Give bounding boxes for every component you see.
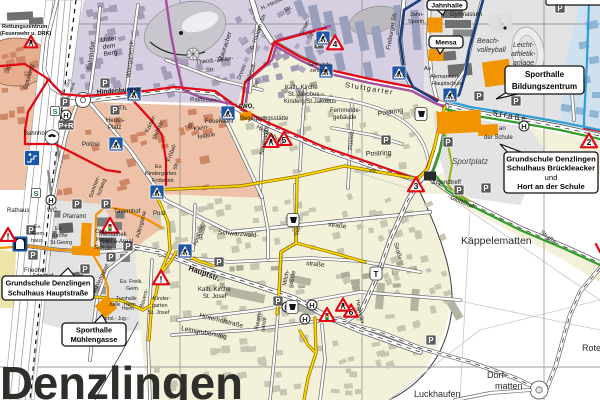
svg-text:P: P — [74, 200, 79, 209]
svg-text:Platz: Platz — [108, 125, 121, 131]
svg-text:P: P — [428, 336, 433, 345]
svg-text:(Feuerwehr u. DRK): (Feuerwehr u. DRK) — [0, 31, 52, 37]
svg-text:Ev.: Ev. — [55, 226, 63, 232]
svg-text:P: P — [445, 138, 450, 147]
svg-text:H: H — [48, 196, 53, 205]
svg-text:P: P — [30, 251, 35, 260]
svg-text:P: P — [62, 98, 67, 107]
svg-text:Grundschule Denzlingen: Grundschule Denzlingen — [506, 154, 596, 163]
svg-text:Dorf-: Dorf- — [487, 370, 507, 380]
svg-text:4: 4 — [333, 39, 338, 49]
svg-text:Polizei: Polizei — [82, 142, 100, 148]
svg-text:Heim: Heim — [122, 306, 134, 312]
svg-text:Kinder-: Kinder- — [153, 296, 171, 302]
svg-text:P: P — [82, 265, 87, 274]
svg-text:AWO,: AWO, — [238, 104, 254, 110]
svg-text:Rote: Rote — [582, 343, 600, 353]
svg-text:und: und — [545, 173, 558, 182]
svg-text:Schulhaus Hauptstraße: Schulhaus Hauptstraße — [8, 289, 88, 298]
svg-text:Luckhaufen: Luckhaufen — [414, 389, 461, 399]
svg-text:2: 2 — [587, 137, 592, 147]
svg-text:P: P — [102, 79, 107, 88]
svg-text:S: S — [52, 107, 57, 116]
svg-text:Hort an der Schule: Hort an der Schule — [517, 182, 585, 191]
svg-text:Mediathek: Mediathek — [99, 232, 128, 238]
svg-text:P: P — [483, 184, 488, 193]
svg-text:Gem.: Gem. — [126, 286, 140, 292]
svg-text:Th.: Th. — [119, 106, 128, 112]
svg-text:H: H — [302, 315, 307, 324]
svg-text:Hauptschule: Hauptschule — [432, 81, 463, 87]
svg-text:St. Jakobus: St. Jakobus — [288, 92, 319, 98]
svg-text:Denzlingen: Denzlingen — [0, 357, 243, 400]
svg-text:Kath. Kirche: Kath. Kirche — [285, 85, 318, 91]
svg-text:S: S — [33, 189, 38, 198]
svg-text:Post: Post — [153, 211, 165, 217]
svg-text:P: P — [513, 97, 518, 106]
svg-text:garten: garten — [152, 303, 168, 309]
svg-text:Sporth.: Sporth. — [408, 19, 426, 25]
svg-text:an: an — [499, 126, 506, 132]
svg-text:WC: WC — [47, 208, 58, 214]
svg-text:Alemannen-: Alemannen- — [430, 74, 460, 80]
svg-text:P: P — [476, 92, 481, 101]
svg-text:St.Georg: St.Georg — [50, 240, 72, 246]
svg-text:Käppelematten: Käppelematten — [461, 235, 532, 247]
svg-text:Jugendtreff: Jugendtreff — [431, 180, 461, 186]
svg-text:Pfarramt: Pfarramt — [63, 214, 86, 220]
svg-text:Fröbelstr.: Fröbelstr. — [152, 178, 175, 184]
svg-text:Fernmelde-: Fernmelde- — [330, 108, 361, 114]
svg-text:gebäude: gebäude — [333, 115, 357, 121]
svg-text:Au: Au — [424, 66, 431, 72]
svg-text:volleyball: volleyball — [477, 47, 506, 54]
svg-text:H: H — [63, 111, 68, 120]
svg-text:Gem.: Gem. — [32, 231, 46, 237]
svg-text:Rocca-Areal: Rocca-Areal — [100, 239, 133, 245]
svg-text:P: P — [383, 136, 388, 145]
svg-text:P: P — [216, 258, 221, 267]
svg-text:Ev. Freik.: Ev. Freik. — [120, 279, 143, 285]
svg-text:Postring: Postring — [366, 150, 392, 158]
svg-text:Kindergarten: Kindergarten — [145, 171, 177, 177]
svg-text:Rettungszentrum: Rettungszentrum — [2, 24, 47, 30]
svg-text:Jahnhalle: Jahnhalle — [431, 2, 463, 9]
svg-text:haus: haus — [31, 238, 43, 244]
svg-text:Mühlengasse: Mühlengasse — [71, 335, 118, 344]
svg-text:Bahnhof: Bahnhof — [24, 131, 47, 137]
svg-text:Grundschule Denzlingen: Grundschule Denzlingen — [6, 279, 91, 288]
svg-text:Kirche: Kirche — [52, 233, 68, 239]
svg-text:Leicht-: Leicht- — [513, 42, 535, 49]
svg-text:St. Josef: St. Josef — [148, 310, 170, 316]
svg-text:matten: matten — [495, 381, 523, 391]
svg-text:der Schule: der Schule — [484, 135, 513, 141]
svg-text:Jahn-: Jahn- — [410, 12, 424, 18]
svg-text:Kinderg.St.Jakobus: Kinderg.St.Jakobus — [284, 99, 336, 105]
svg-text:Mensa: Mensa — [435, 39, 456, 46]
svg-text:Schule: Schule — [94, 245, 113, 252]
svg-text:Gymnasium: Gymnasium — [450, 12, 482, 18]
svg-text:!: ! — [7, 232, 10, 242]
svg-text:athletik-: athletik- — [511, 51, 536, 58]
svg-text:P: P — [275, 297, 280, 306]
svg-text:P+R: P+R — [59, 121, 74, 130]
svg-text:Str.: Str. — [206, 67, 216, 74]
svg-text:Heuss-: Heuss- — [106, 118, 125, 124]
svg-text:zentrum: zentrum — [310, 68, 328, 74]
svg-text:Tavernhof: Tavernhof — [114, 209, 141, 215]
svg-text:P: P — [103, 200, 108, 209]
svg-text:str.: str. — [369, 168, 378, 175]
svg-text:Schulhaus Brückleacker: Schulhaus Brückleacker — [507, 164, 595, 173]
svg-text:T: T — [374, 270, 379, 279]
svg-text:P: P — [108, 253, 113, 262]
svg-text:P: P — [456, 186, 461, 195]
svg-text:Feuerwehr: Feuerwehr — [205, 119, 234, 125]
svg-text:Kath. Kirche: Kath. Kirche — [198, 287, 231, 293]
svg-text:Ev.: Ev. — [155, 164, 163, 170]
svg-text:Sporthalle: Sporthalle — [525, 70, 565, 79]
svg-text:3: 3 — [414, 181, 419, 191]
svg-text:Ev.: Ev. — [34, 224, 42, 230]
svg-text:Begegnungsstätte: Begegnungsstätte — [240, 116, 289, 122]
svg-text:Sportplatz: Sportplatz — [452, 157, 488, 166]
svg-text:Beach-: Beach- — [477, 38, 500, 45]
svg-text:H: H — [309, 301, 314, 310]
svg-text:Rathaus: Rathaus — [7, 208, 29, 214]
svg-text:P: P — [112, 106, 117, 115]
svg-text:!: ! — [160, 275, 163, 285]
svg-text:Sporthalle: Sporthalle — [76, 325, 112, 334]
svg-text:St. Josef: St. Josef — [203, 294, 227, 300]
svg-text:..halle: ..halle — [107, 302, 121, 308]
svg-text:Bildungszentrum: Bildungszentrum — [512, 82, 577, 91]
